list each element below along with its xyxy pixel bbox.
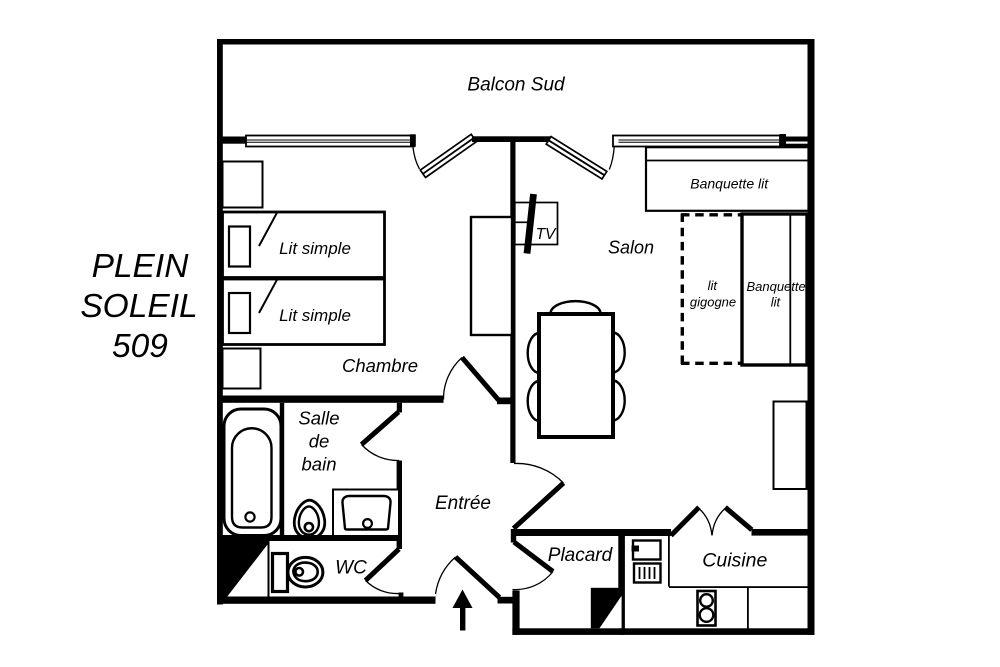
svg-text:Balcon Sud: Balcon Sud [467, 75, 566, 96]
svg-text:Entrée: Entrée [435, 493, 491, 514]
svg-text:bain: bain [302, 454, 337, 475]
svg-text:Lit simple: Lit simple [279, 306, 351, 325]
svg-text:lit: lit [708, 278, 719, 293]
svg-text:Salle: Salle [298, 408, 339, 429]
svg-text:Placard: Placard [548, 545, 614, 566]
svg-text:lit: lit [771, 295, 782, 310]
svg-text:Banquette: Banquette [746, 279, 805, 294]
svg-text:Lit simple: Lit simple [279, 239, 351, 258]
svg-text:SOLEIL: SOLEIL [80, 288, 197, 325]
svg-text:TV: TV [536, 226, 557, 243]
svg-text:509: 509 [112, 328, 168, 365]
svg-text:de: de [309, 431, 330, 452]
svg-text:gigogne: gigogne [690, 295, 736, 310]
svg-text:Chambre: Chambre [342, 355, 418, 376]
svg-text:Salon: Salon [608, 237, 654, 257]
svg-text:PLEIN: PLEIN [92, 248, 190, 285]
svg-text:Cuisine: Cuisine [702, 549, 767, 571]
svg-text:WC: WC [335, 557, 367, 578]
svg-text:Banquette lit: Banquette lit [690, 176, 769, 192]
